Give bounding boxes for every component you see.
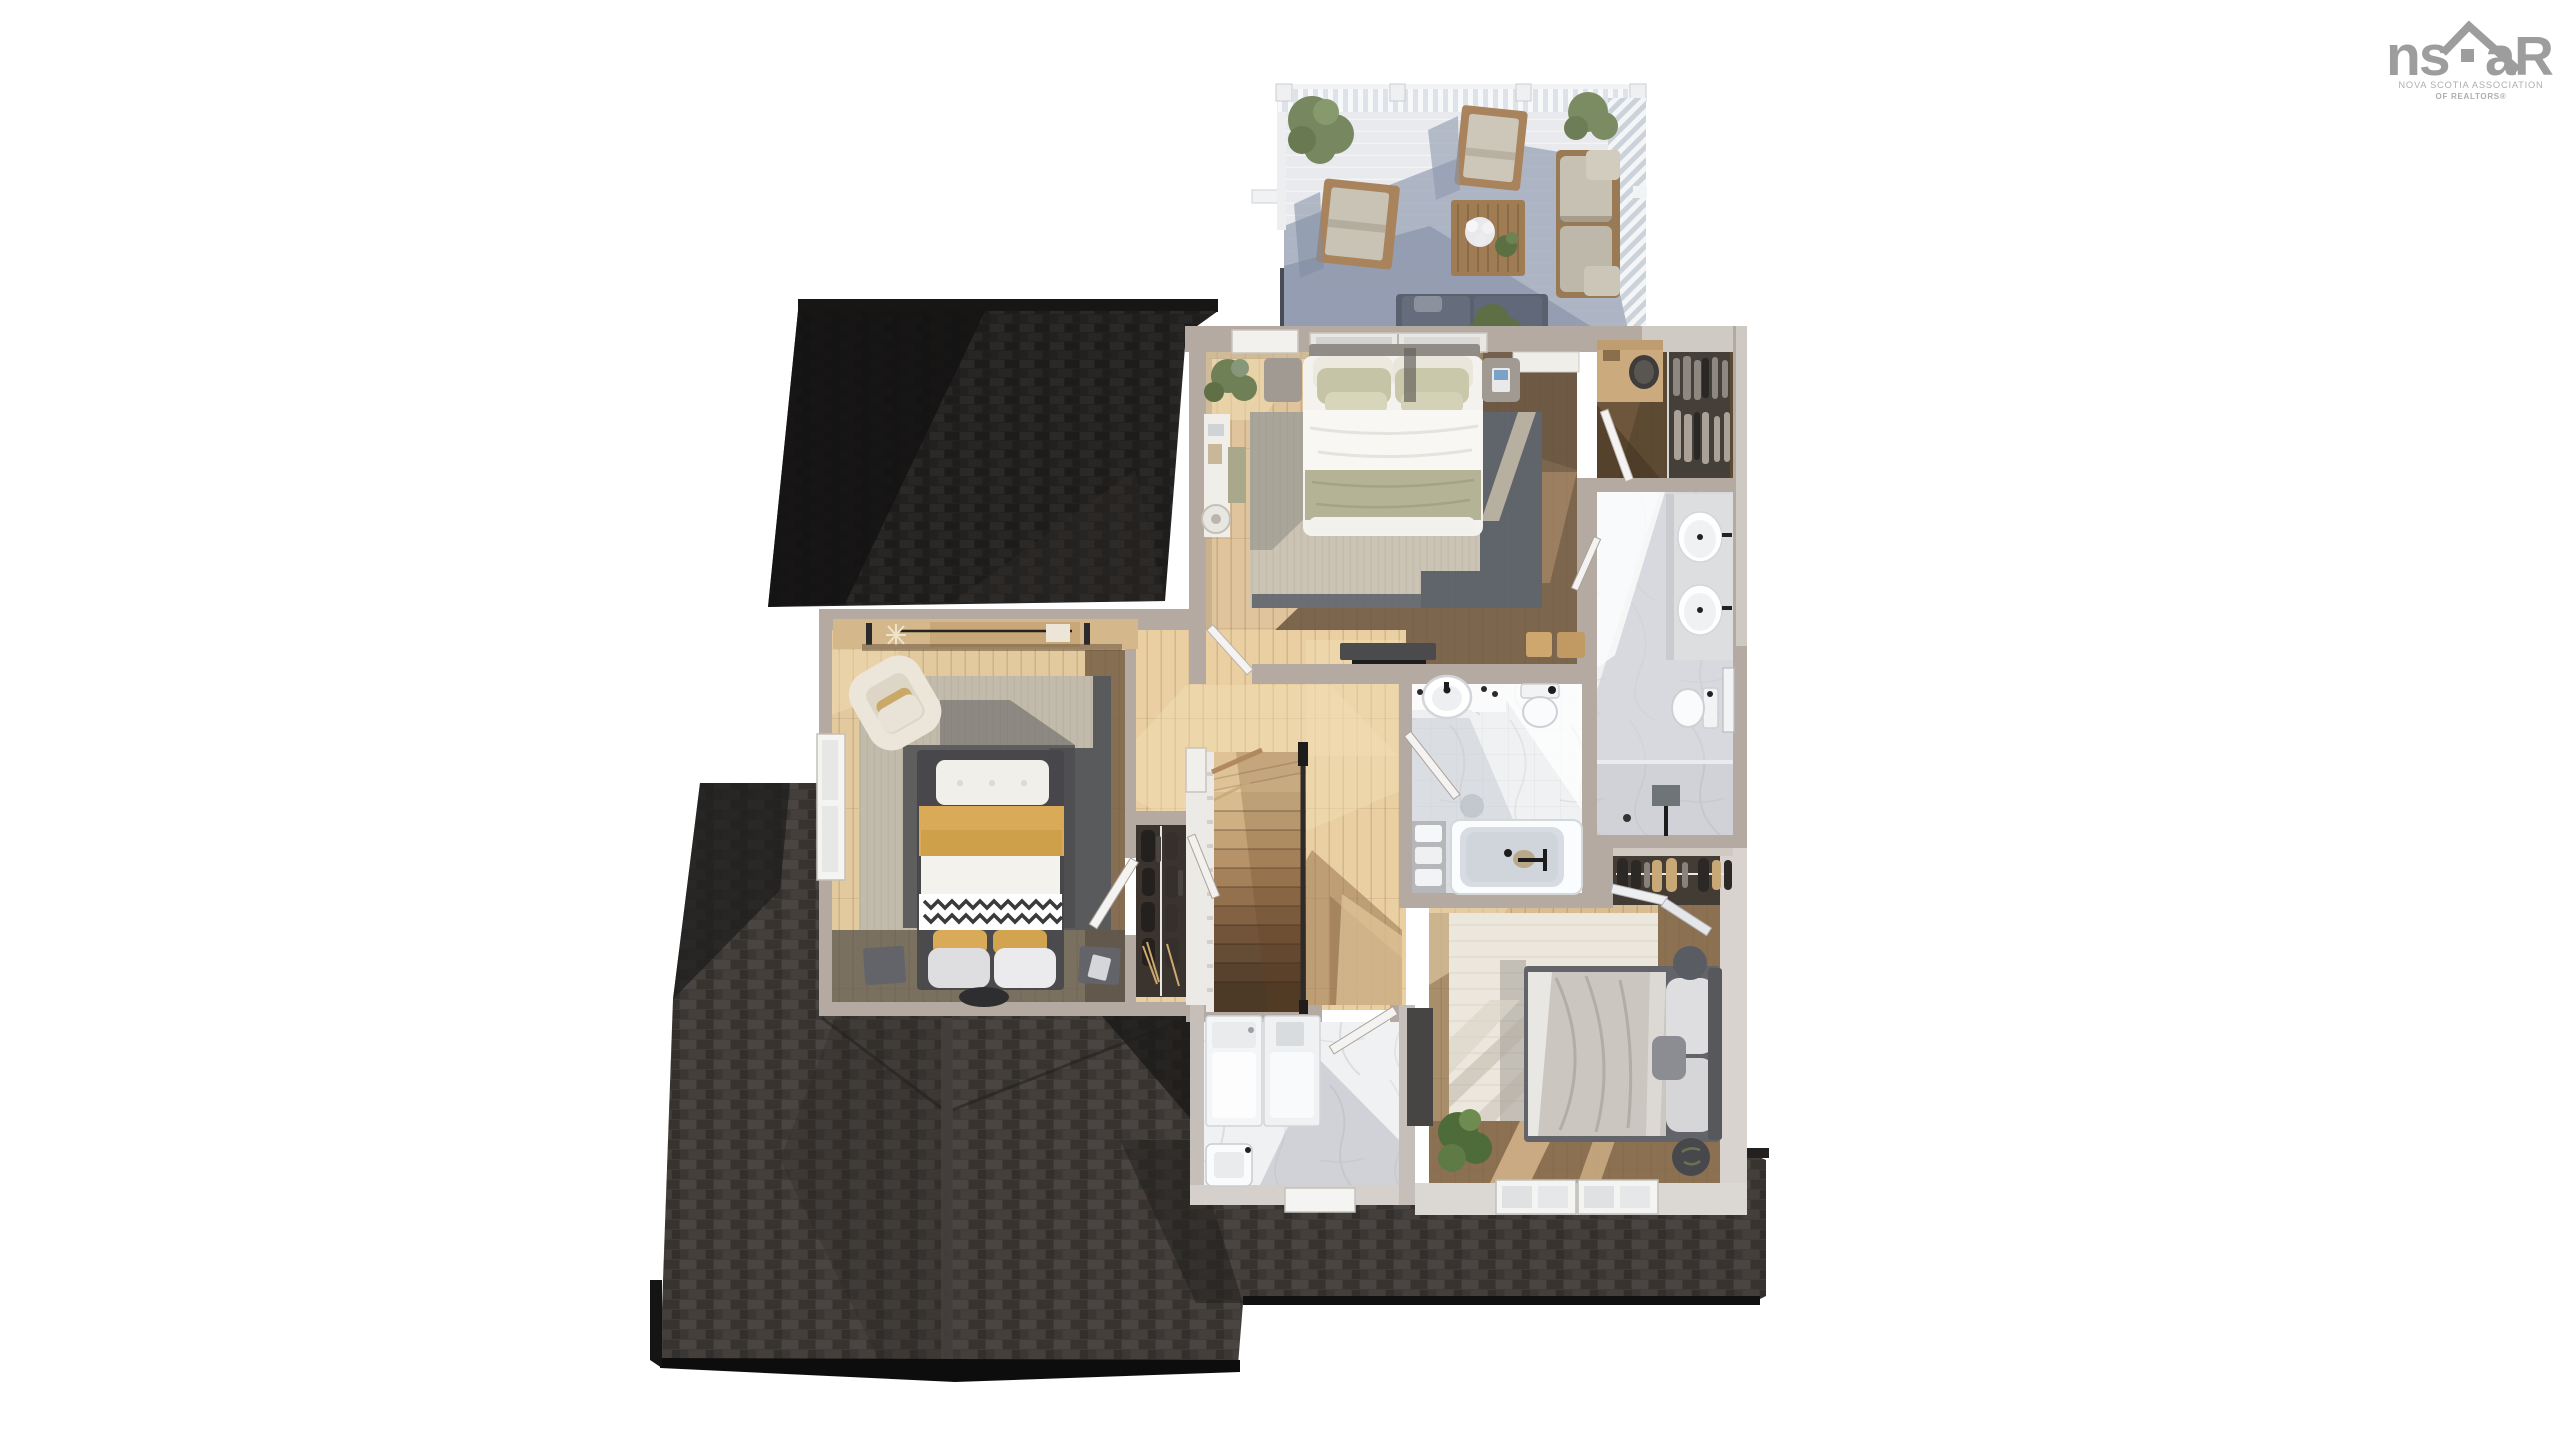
svg-text:NOVA SCOTIA ASSOCIATION: NOVA SCOTIA ASSOCIATION: [2398, 80, 2543, 90]
svg-text:OF REALTORS®: OF REALTORS®: [2436, 92, 2507, 101]
svg-text:aR: aR: [2485, 25, 2553, 87]
svg-text:ns: ns: [2386, 24, 2449, 88]
